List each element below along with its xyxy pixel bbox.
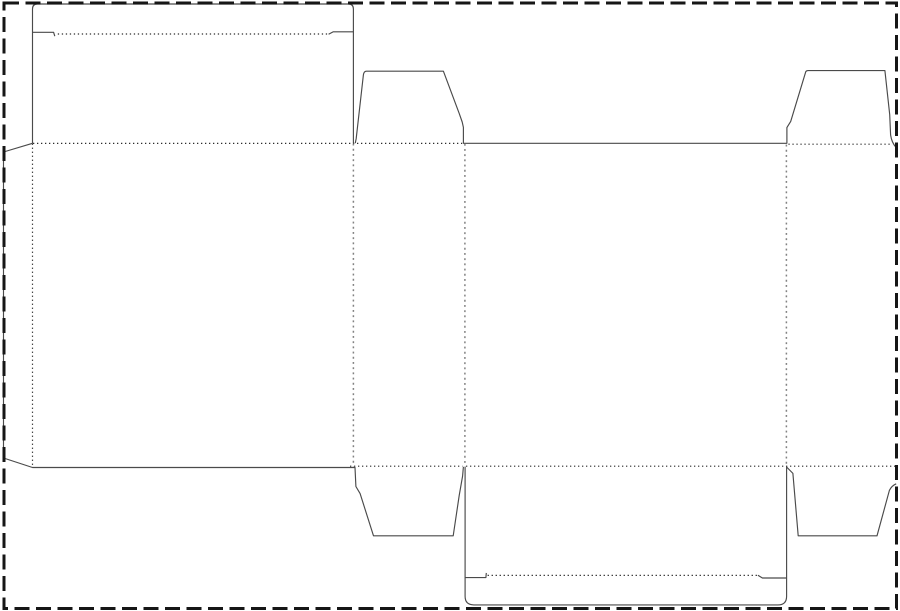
box-dieline-drawing <box>0 0 900 611</box>
canvas-background <box>0 0 900 611</box>
dieline-page <box>0 0 900 611</box>
